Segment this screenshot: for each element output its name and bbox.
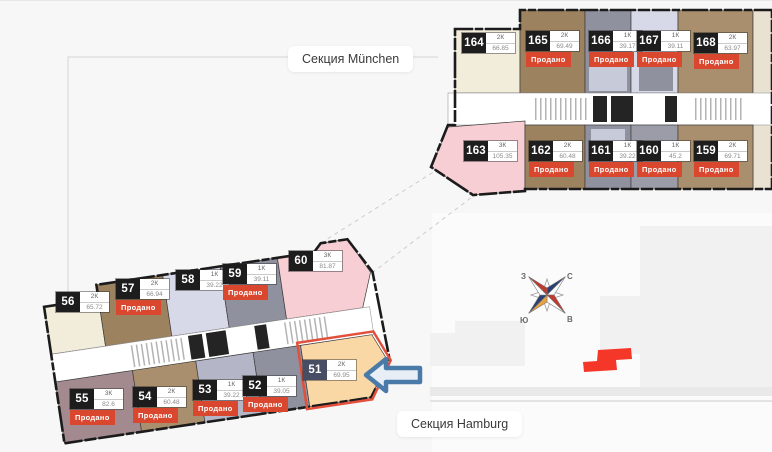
apartment-number: 159: [694, 141, 718, 161]
apartment-number: 51: [303, 360, 327, 380]
apartment-label-162[interactable]: 162 2К60.48 Продано: [529, 141, 582, 177]
apartment-type: 2К: [157, 387, 186, 398]
apartment-number: 55: [70, 389, 94, 409]
apartment-type: 2К: [327, 360, 356, 371]
apartment-label-55[interactable]: 55 3К82.6 Продано: [70, 389, 123, 425]
apartment-type: 2К: [718, 33, 747, 44]
apartment-area: 45.2: [661, 152, 690, 161]
apartment-label-51[interactable]: 51 2К69.95 Продано: [303, 360, 356, 380]
apartment-number: 164: [462, 33, 486, 53]
apartment-area: 39.22: [217, 391, 246, 400]
apartment-label-164[interactable]: 164 2К66.85 Продано: [462, 33, 515, 53]
apartment-number: 168: [694, 33, 718, 53]
apartment-area: 82.6: [94, 400, 123, 409]
apartment-type: 2К: [718, 141, 747, 152]
apartment-label-163[interactable]: 163 3К105.35 Продано: [464, 141, 517, 161]
apartment-type: 2К: [553, 141, 582, 152]
apartment-area: 65.72: [80, 303, 109, 312]
apartment-number: 160: [637, 141, 661, 161]
apartment-number: 161: [589, 141, 613, 161]
apartment-label-165[interactable]: 165 2К69.49 Продано: [526, 31, 579, 67]
sold-badge: Продано: [694, 162, 739, 177]
apartment-area: 66.85: [486, 44, 515, 53]
sold-badge: Продано: [637, 162, 682, 177]
apartment-label-161[interactable]: 161 1К39.22 Продано: [589, 141, 642, 177]
apartment-number: 166: [589, 31, 613, 51]
sold-badge: Продано: [637, 52, 682, 67]
apartment-label-159[interactable]: 159 2К69.71 Продано: [694, 141, 747, 177]
apartment-area: 69.49: [550, 42, 579, 51]
apartment-number: 56: [56, 292, 80, 312]
apartment-number: 60: [289, 251, 313, 271]
section-connector-line: [321, 166, 443, 243]
unit-shape-60[interactable]: [276, 237, 375, 320]
apartment-label-168[interactable]: 168 2К63.97 Продано: [694, 33, 747, 69]
apartment-label-59[interactable]: 59 1К39.11 Продано: [223, 264, 276, 300]
apartment-number: 52: [243, 376, 267, 396]
apartment-type: 1К: [661, 31, 690, 42]
apartment-area: 60.48: [553, 152, 582, 161]
apartment-number: 59: [223, 264, 247, 284]
sold-badge: Продано: [193, 401, 238, 416]
sold-badge: Продано: [529, 162, 574, 177]
apartment-area: 105.35: [488, 152, 517, 161]
apartment-type: 2К: [550, 31, 579, 42]
apartment-number: 163: [464, 141, 488, 161]
apartment-area: 63.97: [718, 44, 747, 53]
apartment-number: 53: [193, 380, 217, 400]
apartment-type: 1К: [661, 141, 690, 152]
apartment-type: 1К: [247, 264, 276, 275]
sold-badge: Продано: [116, 300, 161, 315]
apartment-type: 2К: [80, 292, 109, 303]
apartment-label-167[interactable]: 167 1К39.11 Продано: [637, 31, 690, 67]
apartment-label-160[interactable]: 160 1К45.2 Продано: [637, 141, 690, 177]
sold-badge: Продано: [526, 52, 571, 67]
apartment-type: 3К: [488, 141, 517, 152]
apartment-number: 162: [529, 141, 553, 161]
apartment-area: 81.87: [313, 262, 342, 271]
apartment-label-58[interactable]: 58 1К39.22 Продано: [176, 270, 229, 290]
apartment-type: 2К: [486, 33, 515, 44]
section-label-muenchen: Секция München: [288, 46, 413, 72]
apartment-number: 165: [526, 31, 550, 51]
apartment-number: 58: [176, 270, 200, 290]
apartment-type: 1К: [217, 380, 246, 391]
apartment-area: 39.11: [247, 275, 276, 284]
apartment-label-166[interactable]: 166 1К39.17 Продано: [589, 31, 642, 67]
sold-badge: Продано: [223, 285, 268, 300]
sold-badge: Продано: [243, 397, 288, 412]
apartment-label-56[interactable]: 56 2К65.72 Продано: [56, 292, 109, 312]
apartment-area: 69.95: [327, 371, 356, 380]
sold-badge: Продано: [133, 408, 178, 423]
sold-badge: Продано: [694, 54, 739, 69]
apartment-type: 3К: [94, 389, 123, 400]
apartment-label-57[interactable]: 57 2К66.94 Продано: [116, 279, 169, 315]
compass-south-letter: Ю: [520, 316, 528, 325]
apartment-area: 66.94: [140, 290, 169, 299]
apartment-label-52[interactable]: 52 1К39.05 Продано: [243, 376, 296, 412]
sold-badge: Продано: [70, 410, 115, 425]
apartment-number: 167: [637, 31, 661, 51]
apartment-type: 3К: [313, 251, 342, 262]
apartment-number: 54: [133, 387, 157, 407]
section-label-hamburg: Секция Hamburg: [397, 411, 522, 437]
apartment-type: 1К: [267, 376, 296, 387]
compass-north-letter: С: [567, 272, 573, 281]
apartment-label-60[interactable]: 60 3К81.87 Продано: [289, 251, 342, 271]
sold-badge: Продано: [589, 52, 634, 67]
compass-west-letter: З: [521, 272, 526, 281]
apartment-number: 57: [116, 279, 140, 299]
apartment-area: 39.11: [661, 42, 690, 51]
map-road: [430, 387, 772, 396]
apartment-label-54[interactable]: 54 2К60.48 Продано: [133, 387, 186, 423]
apartment-label-53[interactable]: 53 1К39.22 Продано: [193, 380, 246, 416]
sold-badge: Продано: [589, 162, 634, 177]
apartment-type: 2К: [140, 279, 169, 290]
apartment-area: 69.71: [718, 152, 747, 161]
apartment-area: 39.05: [267, 387, 296, 396]
floor-plan-stage: З С В Ю: [0, 1, 772, 452]
compass-east-letter: В: [567, 315, 573, 324]
apartment-area: 60.48: [157, 398, 186, 407]
